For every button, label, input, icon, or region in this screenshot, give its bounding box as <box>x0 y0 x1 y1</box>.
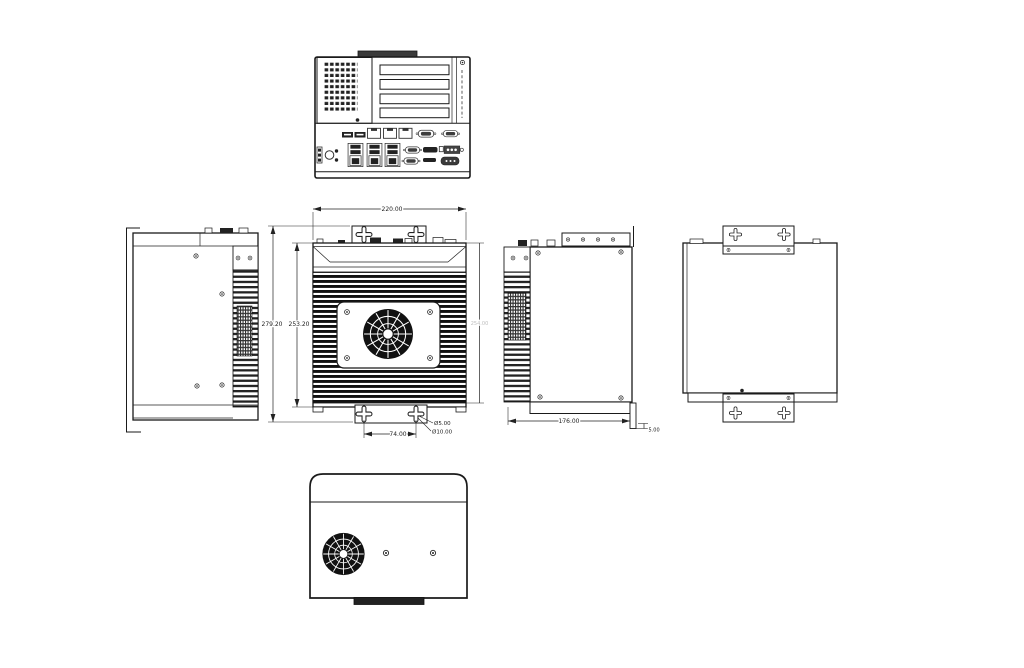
screw <box>787 248 790 251</box>
screw <box>356 118 360 122</box>
mounting-bracket-bottom <box>723 394 794 422</box>
dip-switch <box>439 147 443 152</box>
led-indicator <box>335 149 338 152</box>
foot <box>456 407 466 412</box>
screw <box>619 250 623 254</box>
screw <box>428 356 433 361</box>
dim-label-foot-height: 5.00 <box>649 428 660 434</box>
screw <box>195 384 199 388</box>
dim-label-overall-height: 279.20 <box>262 321 283 328</box>
dim-label-mount-spacing: 74.00 <box>389 431 406 438</box>
drawing-canvas: 220.00 279.20 253.20 254.00 74.0 <box>0 0 1024 668</box>
connector-bump <box>531 240 538 246</box>
screw <box>727 248 730 251</box>
dim-body-height: 253.20 <box>289 243 314 407</box>
screw <box>611 238 614 241</box>
screw <box>581 238 584 241</box>
left-side-view <box>127 228 259 432</box>
lan-port <box>384 128 397 138</box>
connector-bump <box>813 239 820 244</box>
bottom-view-fan <box>310 474 467 605</box>
screw <box>538 395 542 399</box>
dim-label-side-depth: 176.00 <box>559 418 580 425</box>
screw <box>236 256 240 260</box>
screw <box>220 383 224 387</box>
fin-slot-hatch <box>508 293 526 340</box>
displayport <box>423 158 436 162</box>
usb-lan-stack <box>348 143 363 166</box>
serial-port <box>416 130 436 137</box>
dim-right-height-faint: 254.00 <box>466 243 488 403</box>
base-plate <box>530 402 630 414</box>
connector-bump <box>518 240 527 246</box>
usb-lan-stack <box>367 143 382 166</box>
screw-hole <box>383 550 388 555</box>
front-panel-view <box>315 51 470 178</box>
dim-label-top-width: 220.00 <box>382 206 403 213</box>
hdmi-port <box>423 147 438 153</box>
screw <box>194 254 198 258</box>
connector-bump <box>547 240 555 246</box>
serial-port <box>403 147 421 153</box>
top-view-heatsink-fan: 220.00 279.20 253.20 254.00 74.0 <box>262 206 489 438</box>
screw <box>727 396 730 399</box>
connector-bump <box>205 228 212 233</box>
chassis-body <box>530 247 632 402</box>
dim-label-right-height: 254.00 <box>471 321 489 327</box>
screw <box>220 292 224 296</box>
lan-port <box>399 128 412 138</box>
connector-bump <box>239 228 248 233</box>
fan-icon <box>322 533 364 575</box>
mounting-plate-edge <box>562 233 630 246</box>
screw-hole <box>430 550 435 555</box>
foot-bar <box>354 598 424 605</box>
screw <box>536 251 540 255</box>
fin-slot-hatch <box>237 306 252 356</box>
vent-panel <box>317 58 372 124</box>
callout-keyhole-small: Ø5.00 <box>434 420 451 427</box>
screw <box>345 356 350 361</box>
usb-lan-stack <box>385 143 400 166</box>
led-indicator <box>335 158 338 161</box>
screw <box>524 256 528 260</box>
page: 220.00 279.20 253.20 254.00 74.0 <box>0 0 1024 668</box>
foot <box>313 407 323 412</box>
connector-bump <box>220 228 233 233</box>
screw <box>248 256 252 260</box>
dim-label-body-height: 253.20 <box>289 321 310 328</box>
audio-jack <box>460 148 463 151</box>
serial-port <box>441 131 459 137</box>
callout-keyhole-large: Ø10.00 <box>432 429 453 436</box>
mounting-bracket-top <box>723 226 794 254</box>
screw <box>460 60 464 64</box>
screw <box>511 256 515 260</box>
screw <box>740 389 744 393</box>
fan-icon <box>363 309 413 359</box>
screw <box>345 310 350 315</box>
lan-port <box>368 128 381 138</box>
screw <box>787 396 790 399</box>
power-button <box>325 151 334 160</box>
chassis-body <box>683 243 837 393</box>
screw <box>566 238 569 241</box>
serial-port <box>402 158 420 164</box>
connector-bump <box>690 239 703 244</box>
vent-grille <box>325 62 358 112</box>
right-side-view: 176.00 5.00 <box>504 226 660 434</box>
dim-foot-height: 5.00 <box>636 424 660 434</box>
mount-bracket-edge <box>630 403 636 429</box>
screw <box>428 310 433 315</box>
rear-mounting-view <box>683 226 837 422</box>
screw <box>619 396 623 400</box>
screw <box>596 238 599 241</box>
